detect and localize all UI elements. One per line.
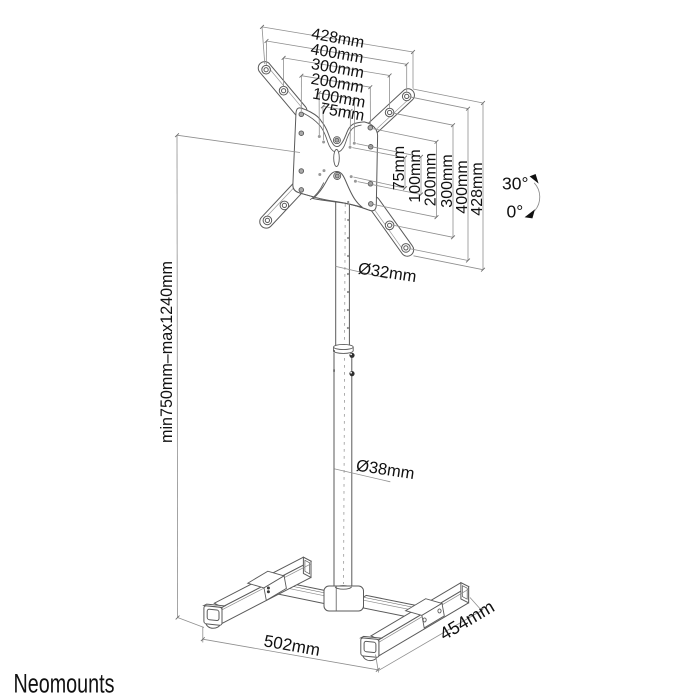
svg-text:100mm: 100mm	[407, 149, 424, 202]
svg-text:30°: 30°	[502, 174, 528, 194]
svg-text:428mm: 428mm	[469, 162, 486, 215]
svg-text:Neomounts: Neomounts	[14, 669, 115, 699]
svg-text:0°: 0°	[507, 202, 524, 222]
svg-text:200mm: 200mm	[423, 153, 440, 206]
svg-text:min750mm–max1240mm: min750mm–max1240mm	[157, 261, 176, 443]
svg-text:75mm: 75mm	[391, 146, 408, 190]
